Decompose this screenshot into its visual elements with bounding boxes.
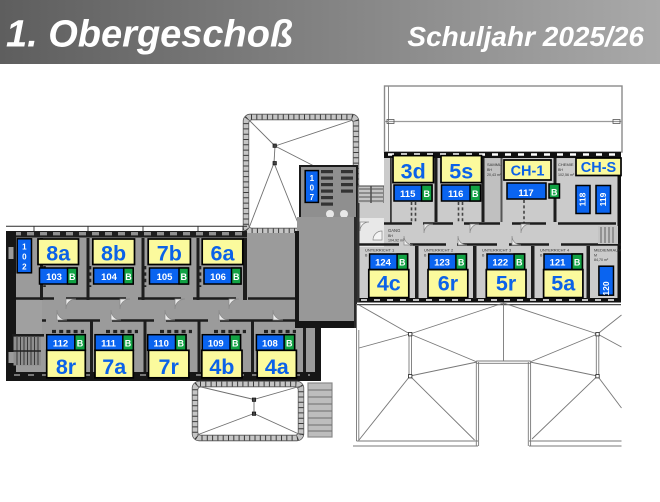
svg-text:1: 1 (22, 243, 27, 252)
svg-text:B: B (125, 339, 132, 349)
svg-text:103: 103 (46, 272, 62, 283)
svg-text:112: 112 (53, 339, 68, 350)
svg-text:0: 0 (310, 184, 315, 193)
svg-text:B: B (458, 257, 465, 267)
svg-text:B: B (69, 272, 76, 282)
svg-text:5s: 5s (449, 160, 473, 184)
svg-text:GANG: GANG (388, 228, 400, 233)
svg-text:105: 105 (157, 272, 174, 283)
svg-text:CHEMIE: CHEMIE (558, 162, 574, 167)
svg-text:2: 2 (22, 263, 27, 272)
svg-text:6r: 6r (438, 272, 459, 296)
svg-text:7b: 7b (157, 242, 182, 266)
svg-text:1: 1 (310, 174, 315, 183)
svg-text:104: 104 (101, 272, 118, 283)
svg-text:5a: 5a (551, 272, 576, 296)
svg-text:B: B (232, 339, 239, 349)
svg-text:UNTERRICHT 1: UNTERRICHT 1 (365, 248, 395, 253)
svg-text:B: B (423, 189, 430, 199)
svg-text:B: B (472, 189, 479, 199)
svg-text:B: B (181, 272, 188, 282)
svg-text:120: 120 (601, 281, 611, 295)
svg-text:0: 0 (22, 253, 27, 262)
svg-text:104,92 m²: 104,92 m² (388, 239, 405, 243)
svg-text:117: 117 (518, 188, 533, 199)
svg-text:106: 106 (210, 272, 226, 283)
svg-text:B: B (233, 272, 240, 282)
svg-text:B: B (286, 339, 293, 349)
svg-text:108: 108 (262, 339, 278, 350)
svg-text:B: B (551, 188, 558, 198)
svg-text:115: 115 (400, 189, 416, 200)
svg-text:B: B (574, 257, 581, 267)
svg-text:7: 7 (310, 193, 315, 202)
svg-text:102,56 m²: 102,56 m² (558, 173, 575, 177)
svg-text:122: 122 (492, 257, 508, 268)
svg-text:B: B (399, 257, 406, 267)
svg-text:121: 121 (550, 257, 567, 268)
svg-text:BH: BH (388, 234, 393, 238)
svg-text:UNTERRICHT 3: UNTERRICHT 3 (482, 248, 512, 253)
svg-text:M: M (594, 254, 597, 258)
svg-text:B: B (177, 339, 184, 349)
svg-text:5r: 5r (496, 272, 517, 296)
svg-text:111: 111 (101, 339, 117, 350)
svg-text:84,70 m²: 84,70 m² (594, 258, 609, 262)
svg-text:BH: BH (558, 168, 563, 172)
svg-text:3d: 3d (401, 160, 426, 184)
svg-text:BH: BH (487, 168, 492, 172)
svg-text:8r: 8r (56, 355, 77, 379)
svg-text:Schuljahr 2025/26: Schuljahr 2025/26 (407, 21, 644, 52)
svg-text:B: B (77, 339, 84, 349)
svg-text:116: 116 (448, 189, 463, 200)
svg-text:8a: 8a (46, 242, 71, 266)
svg-text:UNTERRICHT 4: UNTERRICHT 4 (540, 248, 570, 253)
svg-text:20,43 m²: 20,43 m² (487, 173, 502, 177)
svg-text:B: B (516, 257, 523, 267)
svg-text:7r: 7r (159, 355, 180, 379)
svg-text:8b: 8b (101, 242, 126, 266)
svg-text:119: 119 (598, 192, 608, 206)
svg-text:CH-S: CH-S (581, 160, 617, 176)
svg-text:MEDIENRAUM: MEDIENRAUM (594, 248, 621, 253)
svg-text:7a: 7a (102, 355, 127, 379)
svg-text:SAMML.: SAMML. (487, 162, 502, 167)
svg-text:109: 109 (208, 339, 224, 350)
svg-text:6a: 6a (211, 242, 236, 266)
svg-text:UNTERRICHT 2: UNTERRICHT 2 (424, 248, 454, 253)
svg-text:118: 118 (578, 192, 588, 206)
svg-text:B: B (125, 272, 132, 282)
svg-text:4b: 4b (209, 355, 234, 379)
svg-text:4a: 4a (265, 355, 290, 379)
svg-text:110: 110 (154, 339, 169, 350)
svg-text:4c: 4c (377, 272, 401, 296)
svg-text:124: 124 (375, 257, 392, 268)
svg-text:123: 123 (434, 257, 450, 268)
svg-text:1. Obergeschoß: 1. Obergeschoß (6, 14, 293, 56)
svg-text:CH-1: CH-1 (511, 164, 545, 180)
